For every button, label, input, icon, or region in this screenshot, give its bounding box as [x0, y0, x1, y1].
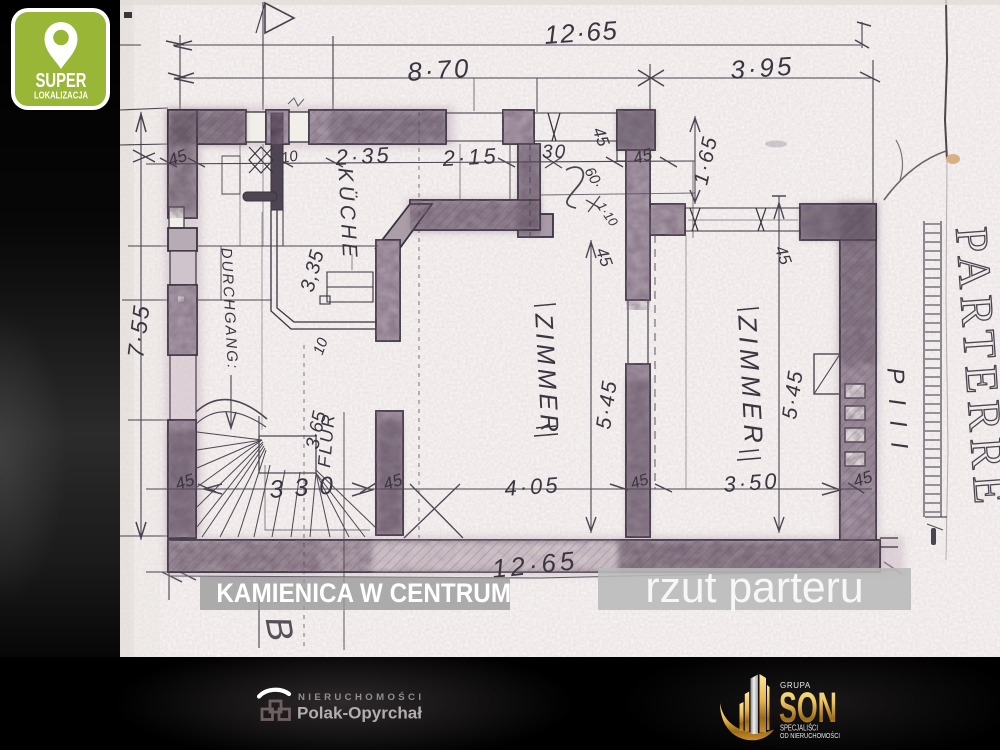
svg-text:12·65: 12·65: [543, 15, 619, 50]
svg-text:4·05: 4·05: [504, 472, 562, 501]
svg-text:30: 30: [542, 142, 567, 163]
svg-text:2·35: 2·35: [334, 142, 392, 170]
svg-text:OD NIERUCHOMOŚCI: OD NIERUCHOMOŚCI: [780, 731, 840, 740]
svg-text:Polak-Opyrchał: Polak-Opyrchał: [297, 704, 422, 723]
svg-text:KÜCHE: KÜCHE: [333, 167, 361, 262]
svg-text:3·95: 3·95: [729, 51, 795, 85]
svg-text:PIII: PIII: [881, 367, 913, 464]
svg-text:3·50: 3·50: [723, 468, 781, 497]
svg-text:8·70: 8·70: [406, 53, 472, 87]
svg-text:LOKALIZACJA: LOKALIZACJA: [34, 91, 88, 102]
svg-text:330: 330: [268, 471, 344, 504]
svg-text:2·15: 2·15: [441, 143, 499, 171]
svg-text:SUPER: SUPER: [36, 70, 87, 92]
svg-text:NIERUCHOMOŚCI: NIERUCHOMOŚCI: [298, 691, 421, 703]
